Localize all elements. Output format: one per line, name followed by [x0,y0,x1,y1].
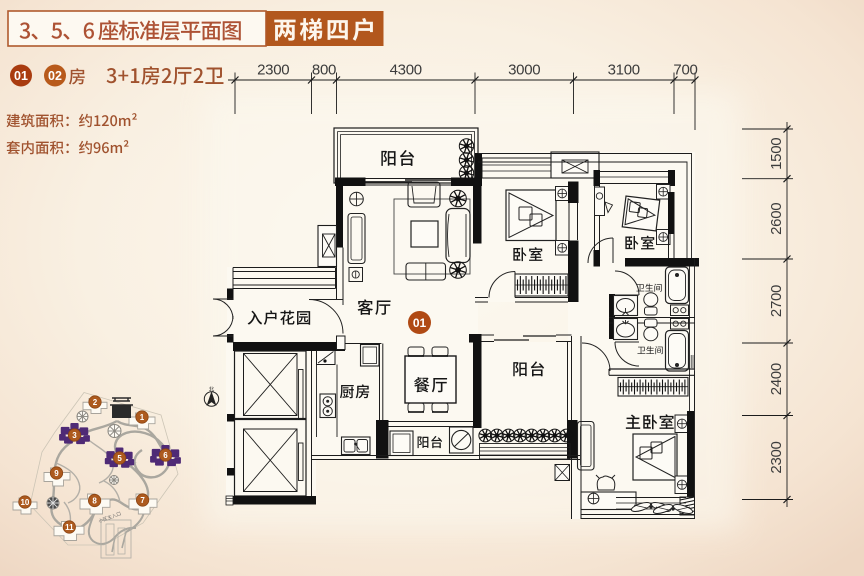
svg-text:2300: 2300 [257,62,289,79]
svg-text:800: 800 [312,62,336,79]
svg-text:2700: 2700 [768,285,785,317]
svg-text:10: 10 [20,498,29,507]
svg-text:3100: 3100 [608,62,640,79]
svg-text:8: 8 [92,496,97,505]
svg-text:01: 01 [14,69,28,83]
svg-text:6: 6 [163,451,168,460]
svg-text:2: 2 [93,398,98,407]
svg-text:2300: 2300 [768,441,785,473]
svg-text:3: 3 [72,431,77,440]
svg-text:5: 5 [117,454,122,463]
svg-text:7: 7 [140,496,145,505]
svg-text:1500: 1500 [768,138,785,170]
svg-text:1: 1 [140,413,145,422]
svg-text:02: 02 [48,69,62,83]
svg-text:9: 9 [54,469,59,478]
svg-text:3000: 3000 [508,62,540,79]
svg-text:11: 11 [65,523,74,532]
svg-text:2600: 2600 [768,203,785,235]
svg-text:4300: 4300 [390,62,422,79]
svg-text:01: 01 [413,316,427,330]
svg-text:700: 700 [673,62,697,79]
svg-text:2400: 2400 [768,363,785,395]
